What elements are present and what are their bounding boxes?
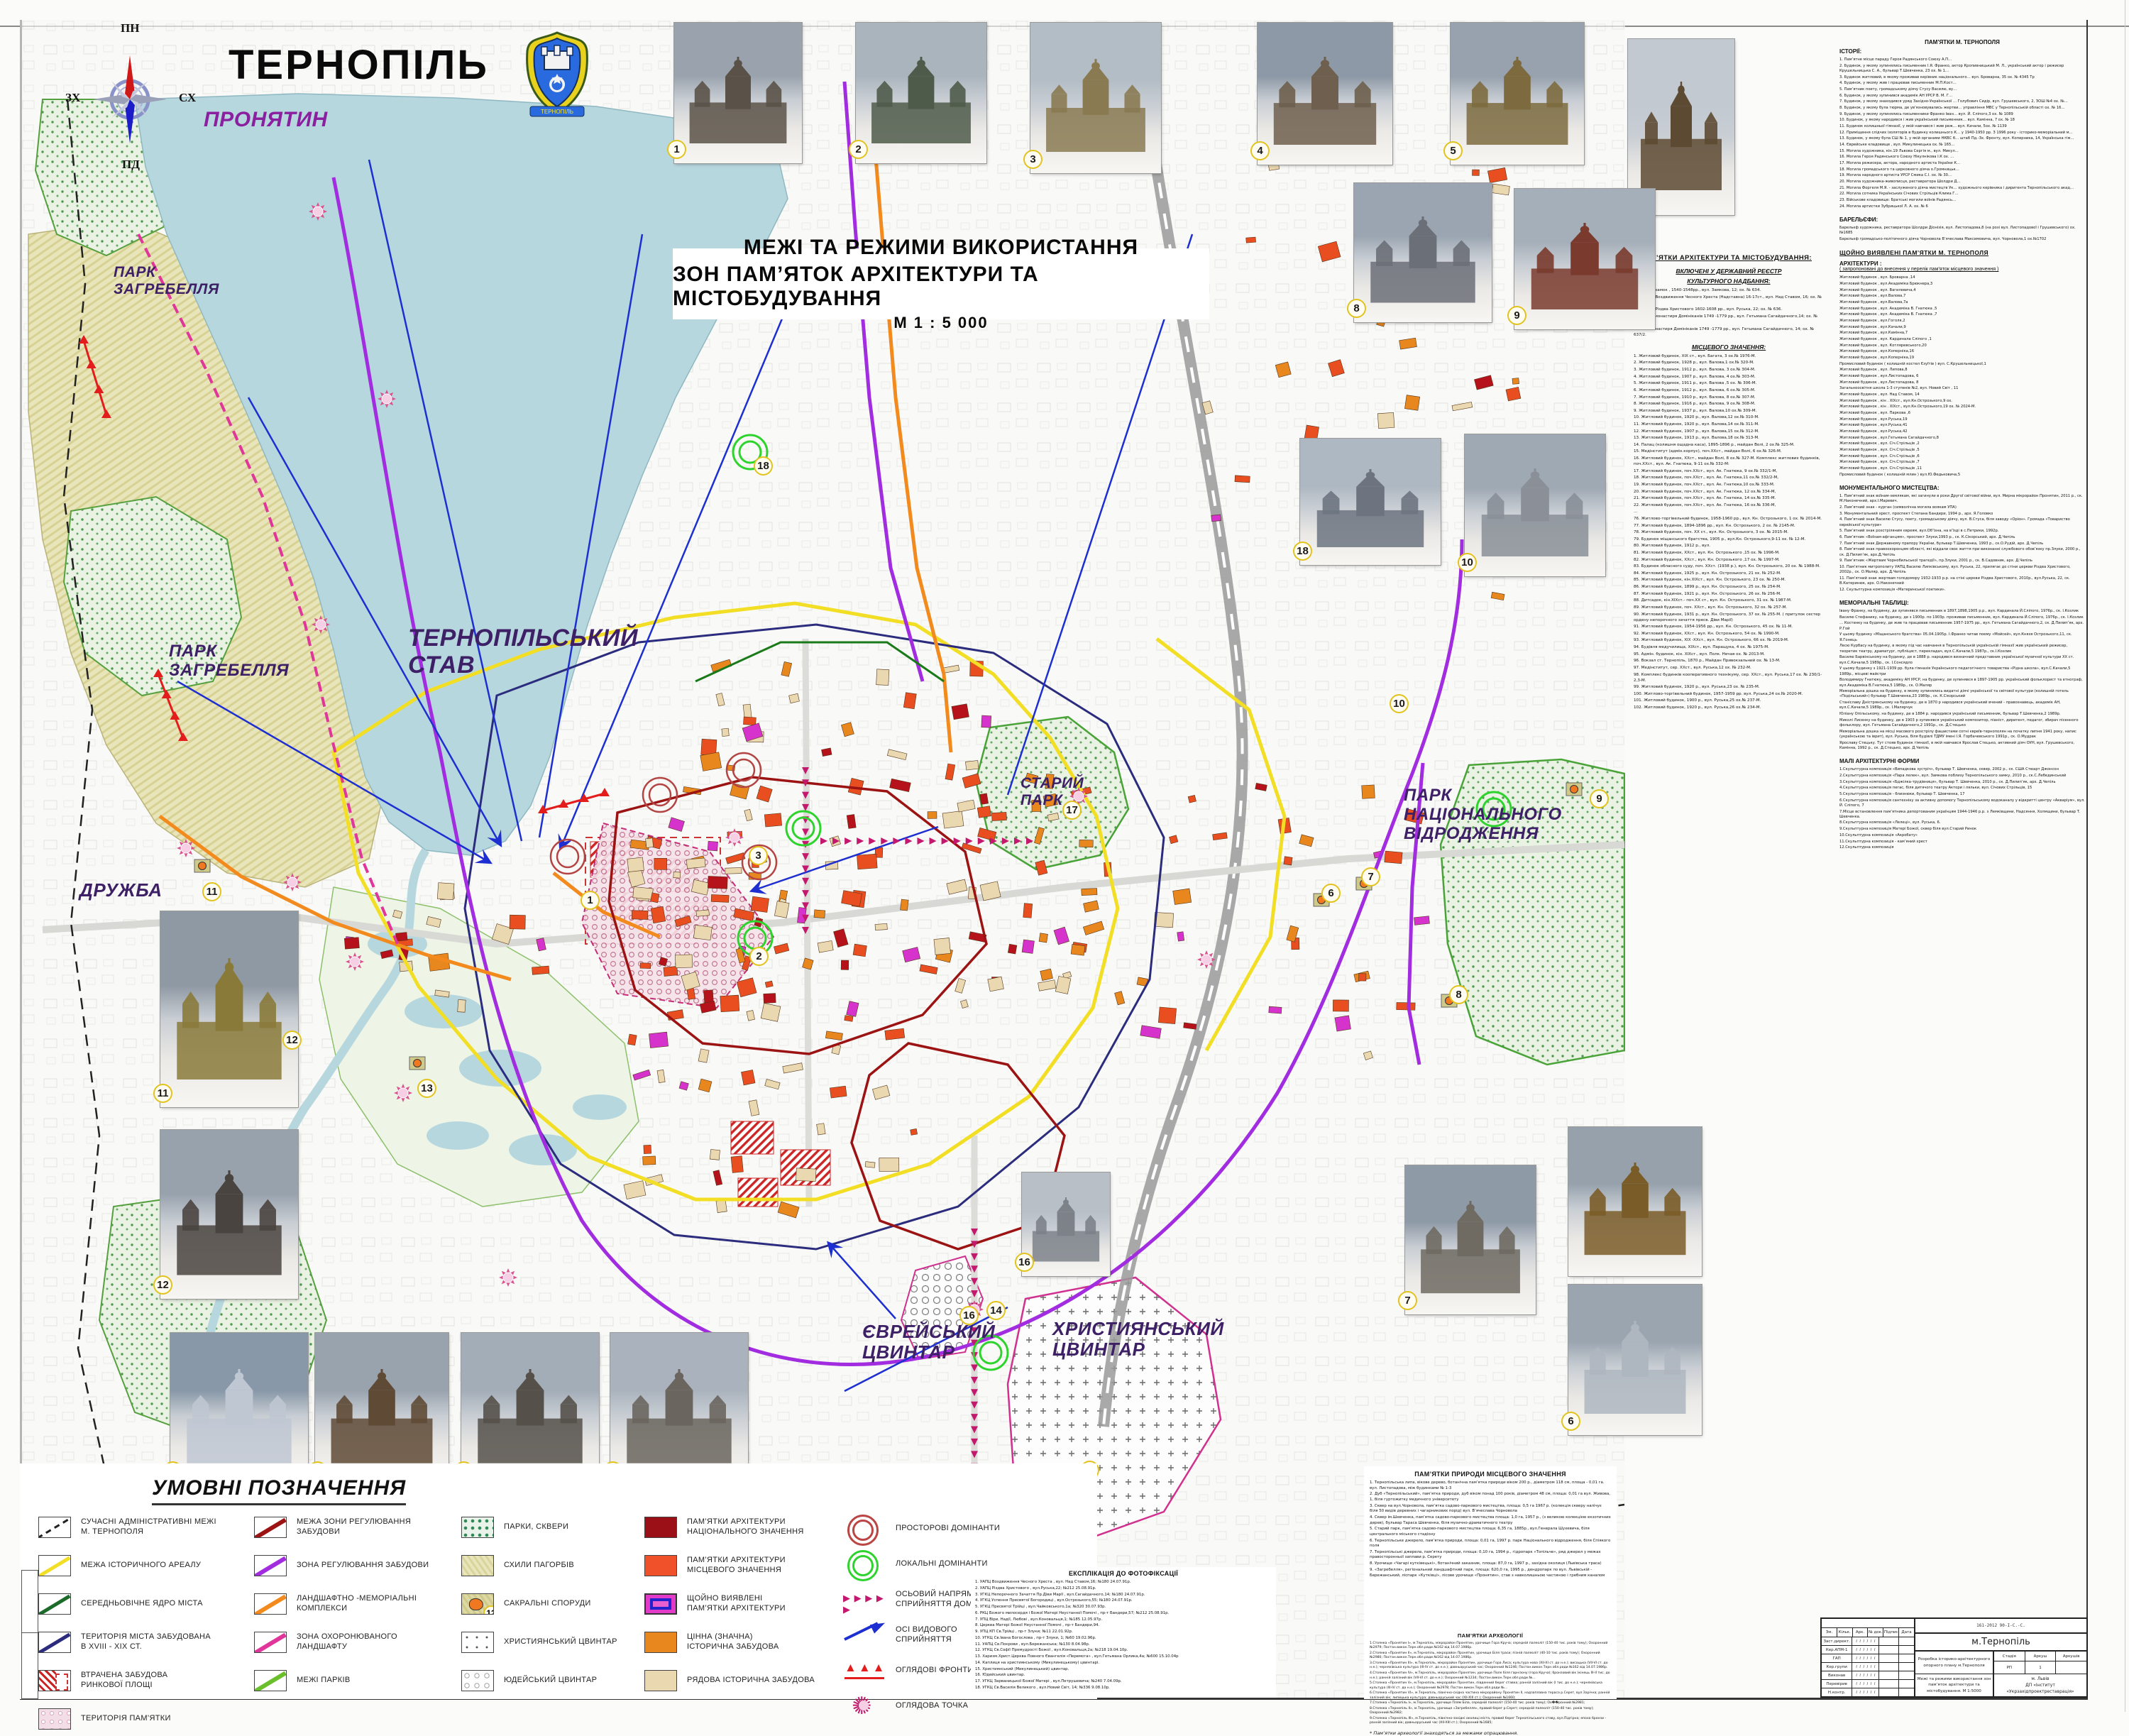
legend-item: ТЕРИТОРІЯ ПАМ’ЯТКИ bbox=[38, 1705, 238, 1733]
local-item: 99. Житловий будинок, 1920 р., вул. Русь… bbox=[1634, 684, 1824, 690]
legend-item: ХРИСТИЯНСЬКИЙ ЦВИНТАР bbox=[461, 1628, 639, 1657]
local-item: 5. Житловий будинок, 1911 р., вул. Валов… bbox=[1634, 380, 1824, 386]
legend-item: МЕЖІ ПАРКІВ bbox=[254, 1666, 446, 1695]
legend-item-label: СУЧАСНІ АДМІНІСТРАТИВНІ МЕЖІ М. ТЕРНОПОЛ… bbox=[81, 1517, 216, 1537]
monument-photo: 3 bbox=[1030, 23, 1161, 173]
plaque-item: Лесю Курбасу на будинку, в якому під час… bbox=[1839, 644, 2085, 654]
history-item: 9. Будинок, у якому зупинялись письменни… bbox=[1839, 112, 2085, 117]
legend-item: СХИЛИ ПАГОРБІВ bbox=[461, 1551, 639, 1580]
small-form-item: 10.Скульптурна композиція «Акробату» bbox=[1839, 833, 2085, 838]
map-area-label: ПРОНЯТИН bbox=[204, 108, 328, 132]
nature-item: 3. Сквер на вул.Чорновола, пам’ятка садо… bbox=[1370, 1504, 1611, 1515]
history-item: 19. Могила народного артиста УРСР Смика … bbox=[1839, 173, 2085, 178]
history-item: 10. Будинок, у якому народився і жив укр… bbox=[1839, 118, 2085, 123]
newly-item: Житловий будинок , вул.Валова,7а bbox=[1839, 300, 2085, 305]
page-title: ТЕРНОПІЛЬ bbox=[229, 41, 489, 89]
plaque-item: Василю Стефанику, на будинку, де з 1900р… bbox=[1839, 615, 2085, 620]
history-item: 21. Могила Форгеля М.Я. - заслуженого ді… bbox=[1839, 186, 2085, 191]
local-item: 102. Житловий будинок, 1920 р., вул. Рус… bbox=[1634, 705, 1824, 710]
legend-swatch-icon bbox=[644, 1670, 677, 1691]
explication-item: 1. УАПЦ Воздвиження Чесного Хреста , вул… bbox=[975, 1580, 1272, 1586]
monument-photo bbox=[1568, 1127, 1702, 1276]
map-number-badge: 2 bbox=[749, 947, 769, 966]
plaques-title: МЕМОРІАЛЬНІ ТАБЛИЦІ: bbox=[1839, 600, 2085, 606]
explication-item: 9. УПЦ КП Св.Трійці , пр-т Злуки; №11 22… bbox=[975, 1630, 1272, 1635]
legend-swatch-icon bbox=[254, 1593, 287, 1615]
legend-swatch-icon bbox=[38, 1593, 71, 1615]
church-silhouette-icon bbox=[610, 1369, 748, 1463]
project-name: Розробка історико-архітектурного опорног… bbox=[1915, 1652, 1993, 1674]
newly-item: Житловий будинок , вул.Листопадова, 8 bbox=[1839, 380, 2085, 385]
compass-north-label: ПН bbox=[121, 21, 139, 35]
plaque-item: Ярославу Стецьку. Тут стояв будинок гімн… bbox=[1839, 741, 2085, 752]
sheet-header: Аркуш bbox=[2025, 1652, 2057, 1661]
newly-item: Житловий будинок , вул. Броварна ,14 bbox=[1839, 275, 2085, 280]
legend-item-label: ЛАНДШАФТНО -МЕМОРІАЛЬНІ КОМПЛЕКСИ bbox=[297, 1594, 417, 1614]
sig-signature bbox=[1879, 1680, 1899, 1688]
map-number-badge: 18 bbox=[754, 456, 773, 476]
history-item: 20. Могила художника-живописця, реставра… bbox=[1839, 180, 2085, 185]
legend-item: МЕЖА ЗОНИ РЕГУЛЮВАННЯ ЗАБУДОВИ bbox=[254, 1513, 446, 1542]
legend-item: СУЧАСНІ АДМІНІСТРАТИВНІ МЕЖІ М. ТЕРНОПОЛ… bbox=[38, 1513, 238, 1542]
plaque-item: Станіславу Дністрянському на будинку, де… bbox=[1839, 701, 2085, 711]
sig-date bbox=[1899, 1688, 1914, 1696]
church-silhouette-icon bbox=[1258, 57, 1392, 145]
legend-swatch-icon bbox=[38, 1517, 71, 1538]
bareliefs-title: БАРЕЛЬЄФИ: bbox=[1839, 216, 2085, 223]
monumental-list: 1. Пам’ятний знак воїнам-землякам, які з… bbox=[1839, 494, 2085, 593]
archeology-list: 1.Стоянка «Пронятин I», м.Тернопіль, мік… bbox=[1370, 1642, 1611, 1726]
nature-item: 8. Урочище «Чагарі кутківецькі», ботаніч… bbox=[1370, 1561, 1611, 1567]
legend-swatch-icon: 12 bbox=[461, 1593, 494, 1615]
newly-item: Житловий будинок , вул.Гоголя,2 bbox=[1839, 319, 2085, 324]
local-item: 77. Житловий будинок, 1894-1896 рр., вул… bbox=[1634, 523, 1824, 529]
newly-item: Загальноосвітня школа 1-3 ступенів №2, в… bbox=[1839, 386, 2085, 391]
local-item: 13. Житловий будинок, 1913 р., вул. Вало… bbox=[1634, 435, 1824, 441]
legend-item: ЛАНДШАФТНО -МЕМОРІАЛЬНІ КОМПЛЕКСИ bbox=[254, 1590, 446, 1618]
local-item: 7. Житловий будинок, 1910 р., вул. Валов… bbox=[1634, 395, 1824, 400]
archeology-item: 6.Стоянка «Пронятин VI», м.Тернопіль, пі… bbox=[1370, 1691, 1611, 1701]
sheet-value: 1 bbox=[2025, 1661, 2057, 1674]
history-item: 24. Могила артистки Зубрицької Л. А. ох.… bbox=[1839, 204, 2085, 209]
history-item: 3. Будинок житловий, в якому проживав ке… bbox=[1839, 75, 2085, 80]
explication-title: ЕКСПЛІКАЦІЯ ДО ФОТОФІКСАЦІЇ bbox=[975, 1570, 1272, 1577]
history-title-1: ПАМ’ЯТКИ М. ТЕРНОПОЛЯ bbox=[1839, 39, 2085, 45]
legend: УМОВНІ ПОЗНАЧЕННЯ СУЧАСНІ АДМІНІСТРАТИВН… bbox=[20, 1463, 1097, 1699]
monumental-item: 8. Пам’ятний знак правоохоронцям області… bbox=[1839, 547, 2085, 558]
legend-item-label: ТЕРИТОРІЯ МІСТА ЗАБУДОВАНА В XVIII - XIX… bbox=[81, 1632, 211, 1652]
legend-item: ЗОНА ОХОРОНЮВАНОГО ЛАНДШАФТУ bbox=[254, 1628, 446, 1657]
local-item: 82. Житловий будинок, XXст., вул. Кн. Ос… bbox=[1634, 557, 1824, 563]
monument-photo: 4 bbox=[1258, 23, 1392, 165]
legend-symbol-icon bbox=[843, 1691, 886, 1722]
sig-role: Перевірив bbox=[1822, 1680, 1852, 1688]
church-silhouette-icon bbox=[1405, 1201, 1536, 1293]
photo-number-badge: 12 bbox=[153, 1275, 172, 1295]
newly-item: Житловий будинок , вул.Коперніка,19 bbox=[1839, 356, 2085, 361]
legend-symbol-icon bbox=[843, 1584, 886, 1615]
history-item: 22. Могила сотника Українських Січових С… bbox=[1839, 192, 2085, 197]
org-name: ДП «Інститут «Укрзахідпроектреставрація» bbox=[2006, 1683, 2074, 1694]
legend-swatch-icon bbox=[644, 1593, 677, 1615]
local-item: 81. Житловий будинок, XXст., вул. Кн. Ос… bbox=[1634, 550, 1824, 556]
local-item: 90. Житловий будинок, 1931 р., вул. Кн. … bbox=[1634, 612, 1824, 623]
legend-item-label: ЮДЕЙСЬКИЙ ЦВИНТАР bbox=[504, 1676, 597, 1686]
explication-item: 8. Церква Матері Божої Неустанної Помочі… bbox=[975, 1623, 1272, 1629]
photo-number-badge: 3 bbox=[1023, 150, 1043, 169]
newly-item: Житловий будинок , вул. Академіка В. Гна… bbox=[1839, 312, 2085, 317]
history-item: 15. Могила художника, кін.19 Львова Серг… bbox=[1839, 149, 2085, 154]
map-area-label: ТЕРНОПІЛЬСЬКИЙ СТАВ bbox=[408, 625, 638, 679]
map-number-badge: 3 bbox=[749, 846, 768, 865]
sig-signature bbox=[1879, 1688, 1899, 1696]
monument-photo: 6 bbox=[1568, 1285, 1702, 1435]
legend-item: ПАРКИ, СКВЕРИ bbox=[461, 1513, 639, 1542]
legend-symbol-icon bbox=[843, 1513, 886, 1544]
small-form-item: 6.Скульптурна композиція сантехніку за а… bbox=[1839, 798, 2085, 809]
local-significance-list: 1. Житловий будинок, XIX ст., вул. Багат… bbox=[1634, 353, 1824, 710]
document-code: 161-2012 90-І-С.-С. bbox=[1915, 1619, 2086, 1634]
registry-item: 3. Церква Різдва Христового 1602-1608 рр… bbox=[1634, 307, 1824, 312]
section-subtitle-registry-1: ВКЛЮЧЕНІ У ДЕРЖАВНИЙ РЕЄСТР bbox=[1634, 268, 1824, 275]
legend-item: ЗОНА РЕГУЛЮВАННЯ ЗАБУДОВИ bbox=[254, 1551, 446, 1580]
section-subtitle-registry-2: КУЛЬТУРНОГО НАДБАННЯ: bbox=[1634, 278, 1824, 285]
monumental-item: 3. Монументальний хрест, проспект Степан… bbox=[1839, 512, 2085, 517]
frame-right bbox=[2086, 20, 2088, 1700]
map-number-badge: 17 bbox=[1062, 801, 1082, 820]
local-item: 86. Житловий будинок, 1899 р., вул. Кн. … bbox=[1634, 584, 1824, 590]
legend-item-label: ОГЛЯДОВІ ФРОНТИ bbox=[896, 1666, 974, 1676]
legend-item: МЕЖА ІСТОРИЧНОГО АРЕАЛУ bbox=[38, 1551, 238, 1580]
newly-item: Промисловий будинок ( колишній млин ) ву… bbox=[1839, 473, 2085, 478]
legend-item-label: ОСІ ВИДОВОГО СПРИЙНЯТТЯ bbox=[896, 1625, 957, 1645]
archeology-item: 8.Стоянка «Тернопіль II», м.Тернопіль, у… bbox=[1370, 1707, 1611, 1716]
newly-item: Житловий будинок , вул.Коперніка,16 bbox=[1839, 349, 2085, 354]
archeology-item: 3.Стоянка «Пронятин III», м.Тернопіль, м… bbox=[1370, 1661, 1611, 1671]
archeology-item: 1.Стоянка «Пронятин I», м.Тернопіль, мік… bbox=[1370, 1642, 1611, 1651]
photo-number-badge: 7 bbox=[1398, 1291, 1417, 1310]
legend-item: ЦІННА (ЗНАЧНА) ІСТОРИЧНА ЗАБУДОВА bbox=[644, 1628, 836, 1657]
sig-rows: Заст.директ. Кер.АПМ-1 ГАП bbox=[1822, 1637, 1914, 1696]
legend-item-label: ОГЛЯДОВА ТОЧКА bbox=[896, 1701, 968, 1711]
photo-number-badge: 4 bbox=[1250, 141, 1270, 160]
church-silhouette-icon bbox=[160, 1170, 298, 1275]
local-item: 6. Житловий будинок, 1912 р., вул. Валов… bbox=[1634, 388, 1824, 393]
monumental-title: МОНУМЕНТАЛЬНОГО МИСТЕЦТВА: bbox=[1839, 485, 2085, 491]
legend-symbol-icon bbox=[843, 1620, 886, 1651]
church-silhouette-icon bbox=[160, 958, 298, 1079]
sheets-header: Аркушів bbox=[2056, 1652, 2086, 1661]
map-area-label: ДРУЖБА bbox=[79, 880, 163, 901]
newly-item: Житловий будинок , кін . XIXст., вул.Кн.… bbox=[1839, 405, 2085, 410]
legend-item-label: ЗОНА ОХОРОНЮВАНОГО ЛАНДШАФТУ bbox=[297, 1632, 446, 1652]
legend-swatch-icon bbox=[461, 1555, 494, 1576]
legend-swatch-icon bbox=[461, 1632, 494, 1653]
sig-header-cell: № док. bbox=[1868, 1628, 1883, 1637]
explication-item: 12. УГКЦ Св.Софії Премудрості Божої , ву… bbox=[975, 1648, 1272, 1654]
sig-header-cell: Підпис bbox=[1883, 1628, 1899, 1637]
legend-column-2: МЕЖА ЗОНИ РЕГУЛЮВАННЯ ЗАБУДОВИ ЗОНА РЕГУ… bbox=[254, 1513, 446, 1695]
sig-header-cell: Арк. bbox=[1853, 1628, 1869, 1637]
history-item: 23. Військове кладовище: Братські могили… bbox=[1839, 198, 2085, 203]
sig-name bbox=[1852, 1680, 1878, 1688]
monument-photo: 7 bbox=[1405, 1165, 1536, 1314]
margin-stamp-box-2 bbox=[21, 1632, 38, 1699]
newly-item: Житловий будинок , вул. Над Ставом, 14 bbox=[1839, 392, 2085, 397]
photo-number-badge: 10 bbox=[1458, 553, 1477, 572]
panel-city-monuments: ПАМ’ЯТКИ М. ТЕРНОПОЛЯ ІСТОРІЇ: 1. Пам’ят… bbox=[1839, 39, 2085, 852]
explication-item: 3. УГКЦ Непорочного Зачаття Пр.Діви Марі… bbox=[975, 1593, 1272, 1598]
legend-swatch-icon bbox=[38, 1632, 71, 1653]
legend-item-label: СЕРЕДНЬОВІЧНЕ ЯДРО МІСТА bbox=[81, 1599, 203, 1609]
church-silhouette-icon bbox=[315, 1369, 449, 1463]
history-item: 1. Пам’ятне місце параду Героя Радянсько… bbox=[1839, 57, 2085, 62]
sig-name bbox=[1852, 1654, 1878, 1662]
photo-number-badge: 9 bbox=[1507, 306, 1526, 325]
local-item: 11. Житловий будинок, 1920 р., вул. Вало… bbox=[1634, 422, 1824, 427]
explication-item: 7. УПЦ Віри, Надії, Любові , вул.Коновал… bbox=[975, 1617, 1272, 1623]
compass-east-label: СХ bbox=[179, 91, 196, 105]
legend-swatch-icon bbox=[254, 1670, 287, 1691]
newly-item: Житловий будинок , вул.Академіка Брюкнер… bbox=[1839, 282, 2085, 287]
legend-item: ЩОЙНО ВИЯВЛЕНІ ПАМ’ЯТКИ АРХІТЕКТУРИ bbox=[644, 1590, 836, 1618]
local-item: 88. Дитсадок, кін.XIXст.- поч.XX ст., ву… bbox=[1634, 598, 1824, 603]
archeology-title: ПАМ’ЯТКИ АРХЕОЛОГІЇ bbox=[1370, 1632, 1611, 1639]
panel-architecture-registry: I. ПАМ’ЯТКИ АРХІТЕКТУРИ ТА МІСТОБУДУВАНН… bbox=[1634, 254, 1824, 712]
sig-date bbox=[1899, 1680, 1914, 1688]
newly-title-3: ( запропоновані до внесення у перелік па… bbox=[1839, 267, 2085, 272]
local-item: 89. Житловий будинок, поч. XXст., вул. К… bbox=[1634, 605, 1824, 610]
map-number-badge: 1 bbox=[581, 891, 600, 910]
legend-swatch-icon bbox=[254, 1555, 287, 1576]
small-forms-title: МАЛІ АРХІТЕКТУРНІ ФОРМИ bbox=[1839, 758, 2085, 764]
local-item: 93. Житловий будинок, XIX -XXст., вул. К… bbox=[1634, 637, 1824, 643]
monument-photo: 2 bbox=[856, 23, 986, 163]
map-number-badge: 12 bbox=[282, 1031, 302, 1050]
monumental-item: 7. Пам’ятний знак Державному прапору Укр… bbox=[1839, 542, 2085, 546]
explication-item: 16. Юдейський цвинтар. bbox=[975, 1673, 1272, 1679]
church-silhouette-icon bbox=[1628, 82, 1734, 191]
sig-name bbox=[1852, 1688, 1878, 1696]
map-number-badge: 8 bbox=[1449, 985, 1468, 1004]
stage-header: Стадія bbox=[1994, 1652, 2025, 1661]
barelief-item: Барельєф художника, реставратора Шолдри … bbox=[1839, 226, 2085, 236]
local-item: 9. Житловий будинок, 1937 р., вул. Валов… bbox=[1634, 408, 1824, 414]
small-form-item: 7.Місце встановлення пам’ятника депортов… bbox=[1839, 810, 2085, 820]
registry-item: 2. Церква Воздвиження Чесного Хреста (На… bbox=[1634, 295, 1824, 306]
newly-item: Житловий будинок , вул. Січ.Стрільців ,1… bbox=[1839, 466, 2085, 471]
map-number-badge: 6 bbox=[1321, 884, 1341, 903]
legend-item-label: МЕЖА ІСТОРИЧНОГО АРЕАЛУ bbox=[81, 1561, 201, 1571]
local-item: 95. Адмін. будинок, кін. XIXст., вул. По… bbox=[1634, 652, 1824, 657]
history-item: 14. Єврейське кладовище , вул. Микулинец… bbox=[1839, 143, 2085, 148]
map-scale: М 1 : 5 000 bbox=[893, 314, 988, 332]
legend-item: ЮДЕЙСЬКИЙ ЦВИНТАР bbox=[461, 1666, 639, 1695]
local-item: 85. Житловий будинок, кін.XIXст., вул. К… bbox=[1634, 577, 1824, 583]
church-silhouette-icon bbox=[1354, 216, 1492, 303]
map-number-badge: 14 bbox=[986, 1301, 1006, 1320]
legend-item: ПАМ’ЯТКИ АРХІТЕКТУРИ НАЦІОНАЛЬНОГО ЗНАЧЕ… bbox=[644, 1513, 836, 1542]
explication-item: 13. Харизм.Христ.Церква Повного Євангелі… bbox=[975, 1654, 1272, 1660]
nature-item: 2. Дуб «Тернопільський», пам’ятка природ… bbox=[1370, 1492, 1611, 1502]
newly-item: Житловий будинок , вул. Вагилевича,4 bbox=[1839, 288, 2085, 293]
local-item: 19. Житловий будинок, поч.XXст., вул. Ак… bbox=[1634, 482, 1824, 488]
church-silhouette-icon bbox=[1300, 469, 1441, 547]
local-item: 97. Медінститут, сер. XXст., вул. Руська… bbox=[1634, 665, 1824, 671]
legend-item-label: ПРОСТОРОВІ ДОМІНАНТИ bbox=[896, 1524, 1000, 1534]
explication-item: 4. УГКЦ Успення Пресвятої Богородиці , в… bbox=[975, 1598, 1272, 1604]
monumental-item: 4. Пам’ятний знак Василю Стусу, поету, г… bbox=[1839, 517, 2085, 528]
legend-item-label: ПАРКИ, СКВЕРИ bbox=[504, 1522, 568, 1532]
photo-number-badge: 5 bbox=[1443, 141, 1463, 160]
small-form-item: 12.Скульптурна композиція bbox=[1839, 845, 2085, 850]
legend-item-label: ЩОЙНО ВИЯВЛЕНІ ПАМ’ЯТКИ АРХІТЕКТУРИ bbox=[687, 1594, 786, 1614]
plaque-item: Василю Барвінському на будинку, де в 188… bbox=[1839, 655, 2085, 666]
local-item: 8. Житловий будинок, 1916 р., вул. Валов… bbox=[1634, 401, 1824, 407]
sig-role: Кер.АПМ-1 bbox=[1822, 1646, 1852, 1654]
local-item: 94. Будівля медучилища, XIXст., вул. Пар… bbox=[1634, 644, 1824, 650]
explication-item: 2. УАПЦ Різдва Христового , вул.Руська,2… bbox=[975, 1586, 1272, 1592]
plaque-item: Меморіальна дошка на будинку, в якому зу… bbox=[1839, 689, 2085, 700]
newly-item: Житловий будинок , кін . XIXст., вул.Кн.… bbox=[1839, 399, 2085, 404]
local-item: 78. Житловий будинок, поч. XX ст., вул. … bbox=[1634, 529, 1824, 535]
sig-date bbox=[1899, 1654, 1914, 1662]
map-title-line2: ЗОН ПАМ’ЯТОК АРХІТЕКТУРИ ТА МІСТОБУДУВАН… bbox=[673, 263, 1209, 311]
sig-role: ГАП bbox=[1822, 1654, 1852, 1662]
legend-column-1: СУЧАСНІ АДМІНІСТРАТИВНІ МЕЖІ М. ТЕРНОПОЛ… bbox=[38, 1513, 238, 1733]
monumental-item: 12. Скульптурна композиція «Материнської… bbox=[1839, 588, 2085, 593]
sheet-title: Межі та режими використання зон пам’яток… bbox=[1915, 1674, 1993, 1696]
sig-role: Заст.директ. bbox=[1822, 1637, 1852, 1645]
photo-number-badge: 18 bbox=[1293, 542, 1312, 561]
photo-number-badge: 6 bbox=[1561, 1412, 1580, 1431]
object-name: м.Тернопіль bbox=[1915, 1634, 2086, 1652]
local-item: 20. Житловий будинок, поч.XXст., вул. Ак… bbox=[1634, 489, 1824, 495]
sig-name bbox=[1852, 1646, 1878, 1654]
church-silhouette-icon bbox=[1451, 57, 1584, 145]
map-number-badge: 13 bbox=[417, 1079, 436, 1098]
explication-list: 1. УАПЦ Воздвиження Чесного Хреста , вул… bbox=[975, 1580, 1272, 1691]
monument-photo: 18 bbox=[1300, 439, 1441, 565]
sig-role: Н.контр. bbox=[1822, 1688, 1852, 1696]
section-subtitle-local: МІСЦЕВОГО ЗНАЧЕННЯ: bbox=[1634, 344, 1824, 351]
barelief-item: Барельєф громадсько-політичного діяча Чо… bbox=[1839, 237, 2085, 242]
legend-item-label: СХИЛИ ПАГОРБІВ bbox=[504, 1561, 574, 1571]
monumental-item: 6. Пам’ятник «Воїнам-афганцям», проспект… bbox=[1839, 535, 2085, 540]
sig-role: Кер.групи bbox=[1822, 1663, 1852, 1671]
photo-number-badge: 8 bbox=[1347, 299, 1366, 318]
title-block-signatures: Зм.Кільк.Арк.№ док.ПідписДата Заст.дирек… bbox=[1822, 1619, 1915, 1696]
archeology-item: 9.Стоянка «Тернопіль III», м.Тернопіль, … bbox=[1370, 1717, 1611, 1726]
legend-item: СЕРЕДНЬОВІЧНЕ ЯДРО МІСТА bbox=[38, 1590, 238, 1618]
small-form-item: 11.Скульптурна композиція - кам’яний хре… bbox=[1839, 840, 2085, 845]
monument-photo: 12 bbox=[160, 1130, 298, 1299]
local-item: 21. Житловий будинок, поч.XXст., вул. Ак… bbox=[1634, 495, 1824, 501]
legend-item-label: ПАМ’ЯТКИ АРХІТЕКТУРИ МІСЦЕВОГО ЗНАЧЕННЯ bbox=[687, 1556, 786, 1576]
explication-item: 11. УАПЦ Св.Покрови , вул.Бережанська; №… bbox=[975, 1642, 1272, 1648]
stage-value: РП bbox=[1994, 1661, 2025, 1674]
registry-item: 4. Костел монастиря Домініканів 1749 -17… bbox=[1634, 314, 1824, 325]
compass-west-label: ЗХ bbox=[65, 91, 80, 105]
history-item: 18. Могила громадського та церковного ді… bbox=[1839, 167, 2085, 172]
nature-item: 6. Тернопільське джерело, пам’ятка приро… bbox=[1370, 1539, 1611, 1549]
sig-date bbox=[1899, 1637, 1914, 1645]
local-item: 91. Житловий будинок, 1954-1956 рр., вул… bbox=[1634, 624, 1824, 630]
legend-swatch-icon bbox=[644, 1555, 677, 1576]
legend-item-label: САКРАЛЬНІ СПОРУДИ bbox=[504, 1599, 591, 1609]
local-item: 76. Житлово-торгівельний будинок, 1958-1… bbox=[1634, 516, 1824, 522]
monument-photo: 11 bbox=[160, 911, 298, 1107]
legend-item-label: МЕЖІ ПАРКІВ bbox=[297, 1676, 350, 1686]
local-item: 83. Будинок обласного суду, поч. XXст. (… bbox=[1634, 564, 1824, 569]
history-item: 6. Будинок, у якому зупинився академік А… bbox=[1839, 94, 2085, 99]
church-silhouette-icon bbox=[1514, 223, 1655, 310]
church-silhouette-icon bbox=[170, 1369, 308, 1463]
registry-item: 1. Старий замок , 1540-1548рр., вул. Зам… bbox=[1634, 287, 1824, 293]
newly-item: Житловий будинок , вул. Котляревського,2… bbox=[1839, 344, 2085, 348]
photo-number-badge: 2 bbox=[849, 140, 868, 159]
sig-signature bbox=[1879, 1646, 1899, 1654]
sig-date bbox=[1899, 1663, 1914, 1671]
map-area-label: ХРИСТИЯНСЬКИЙ ЦВИНТАР bbox=[1052, 1319, 1224, 1360]
newly-item: Житловий будинок , вул.Руська,41 bbox=[1839, 423, 2085, 428]
plaque-item: У цьому будинку «Міщанського братства» 0… bbox=[1839, 632, 2085, 643]
explication-item: 18. УГКЦ Св.Василія Великого , вул.Новий… bbox=[975, 1686, 1272, 1691]
monument-photo: 14 bbox=[315, 1333, 449, 1485]
map-number-badge: 16 bbox=[959, 1306, 979, 1325]
sig-name bbox=[1852, 1663, 1878, 1671]
org-city: м. Львів bbox=[2031, 1676, 2049, 1681]
nature-item: 9. «Загребелля», регіональний ландшафтни… bbox=[1370, 1568, 1611, 1578]
local-item: 12. Житловий будинок, 1907 р., вул. Вало… bbox=[1634, 429, 1824, 434]
monument-photo: 10 bbox=[1465, 434, 1605, 576]
sig-signature bbox=[1879, 1654, 1899, 1662]
history-item: 12. Приміщення слідчих ізоляторів в буди… bbox=[1839, 131, 2085, 136]
local-item: 15. Медінститут (адмін.корпус), поч.XXст… bbox=[1634, 449, 1824, 454]
newly-item: Житловий будинок , вул. Паркова ,6 bbox=[1839, 411, 2085, 416]
map-area-label: ПАРК ЗАГРЕБЕЛЛЯ bbox=[114, 264, 219, 297]
legend-item-label: ХРИСТИЯНСЬКИЙ ЦВИНТАР bbox=[504, 1637, 617, 1647]
local-item: 92. Житловий будинок, XXст., вул. Кн. Ос… bbox=[1634, 631, 1824, 637]
map-title-box: МЕЖІ ТА РЕЖИМИ ВИКОРИСТАННЯ ЗОН ПАМ’ЯТОК… bbox=[673, 248, 1209, 319]
monumental-item: 5. Пам’ятний знак розстріляним євреям, в… bbox=[1839, 529, 2085, 534]
city-coat-of-arms: ТЕРНОПІЛЬ bbox=[523, 30, 591, 129]
legend-item: 12 САКРАЛЬНІ СПОРУДИ bbox=[461, 1590, 639, 1618]
newly-title-2: АРХІТЕКТУРИ : bbox=[1839, 260, 2085, 267]
margin-stamp-box-1 bbox=[21, 1570, 38, 1634]
legend-item: ВТРАЧЕНА ЗАБУДОВА РИНКОВОЇ ПЛОЩІ bbox=[38, 1666, 238, 1695]
legend-item-label: ТЕРИТОРІЯ ПАМ’ЯТКИ bbox=[81, 1714, 171, 1724]
monumental-item: 2. Пам’ятний знак - курган (символічна м… bbox=[1839, 505, 2085, 510]
photo-number-badge: 11 bbox=[153, 1084, 172, 1103]
archeology-item: 7.Стоянка «Тернопіль I», м.Тернопіль, ур… bbox=[1370, 1701, 1611, 1705]
legend-item-label: ВТРАЧЕНА ЗАБУДОВА РИНКОВОЇ ПЛОЩІ bbox=[81, 1671, 167, 1691]
title-block: Зм.Кільк.Арк.№ док.ПідписДата Заст.дирек… bbox=[1820, 1617, 2088, 1698]
sig-name bbox=[1852, 1671, 1878, 1679]
history-item: 8. Будинок, у якому була тюрма, де ув’яз… bbox=[1839, 106, 2085, 111]
plaque-item: Юліану Опільському, на будинку, де в 188… bbox=[1839, 712, 2085, 717]
local-item: 14. Палац (колишня ощадна каса), 1895-18… bbox=[1634, 442, 1824, 448]
church-silhouette-icon bbox=[1568, 1321, 1702, 1414]
map-title-line1: МЕЖІ ТА РЕЖИМИ ВИКОРИСТАННЯ bbox=[744, 236, 1138, 260]
plaque-item: Миколі Лисенку на будинку, де в 1903 р з… bbox=[1839, 718, 2085, 729]
sig-signature bbox=[1879, 1637, 1899, 1645]
legend-title: УМОВНІ ПОЗНАЧЕННЯ bbox=[152, 1476, 406, 1505]
explication-item: 6. РКЦ Божого милосердя і Божої Матері Н… bbox=[975, 1611, 1272, 1617]
plaque-item: Меморіальна дошка на місці масового розс… bbox=[1839, 730, 2085, 740]
monumental-item: 1. Пам’ятний знак воїнам-землякам, які з… bbox=[1839, 494, 2085, 505]
local-item: 16. Житловий будинок, XXст., майдан Волі… bbox=[1634, 456, 1824, 467]
